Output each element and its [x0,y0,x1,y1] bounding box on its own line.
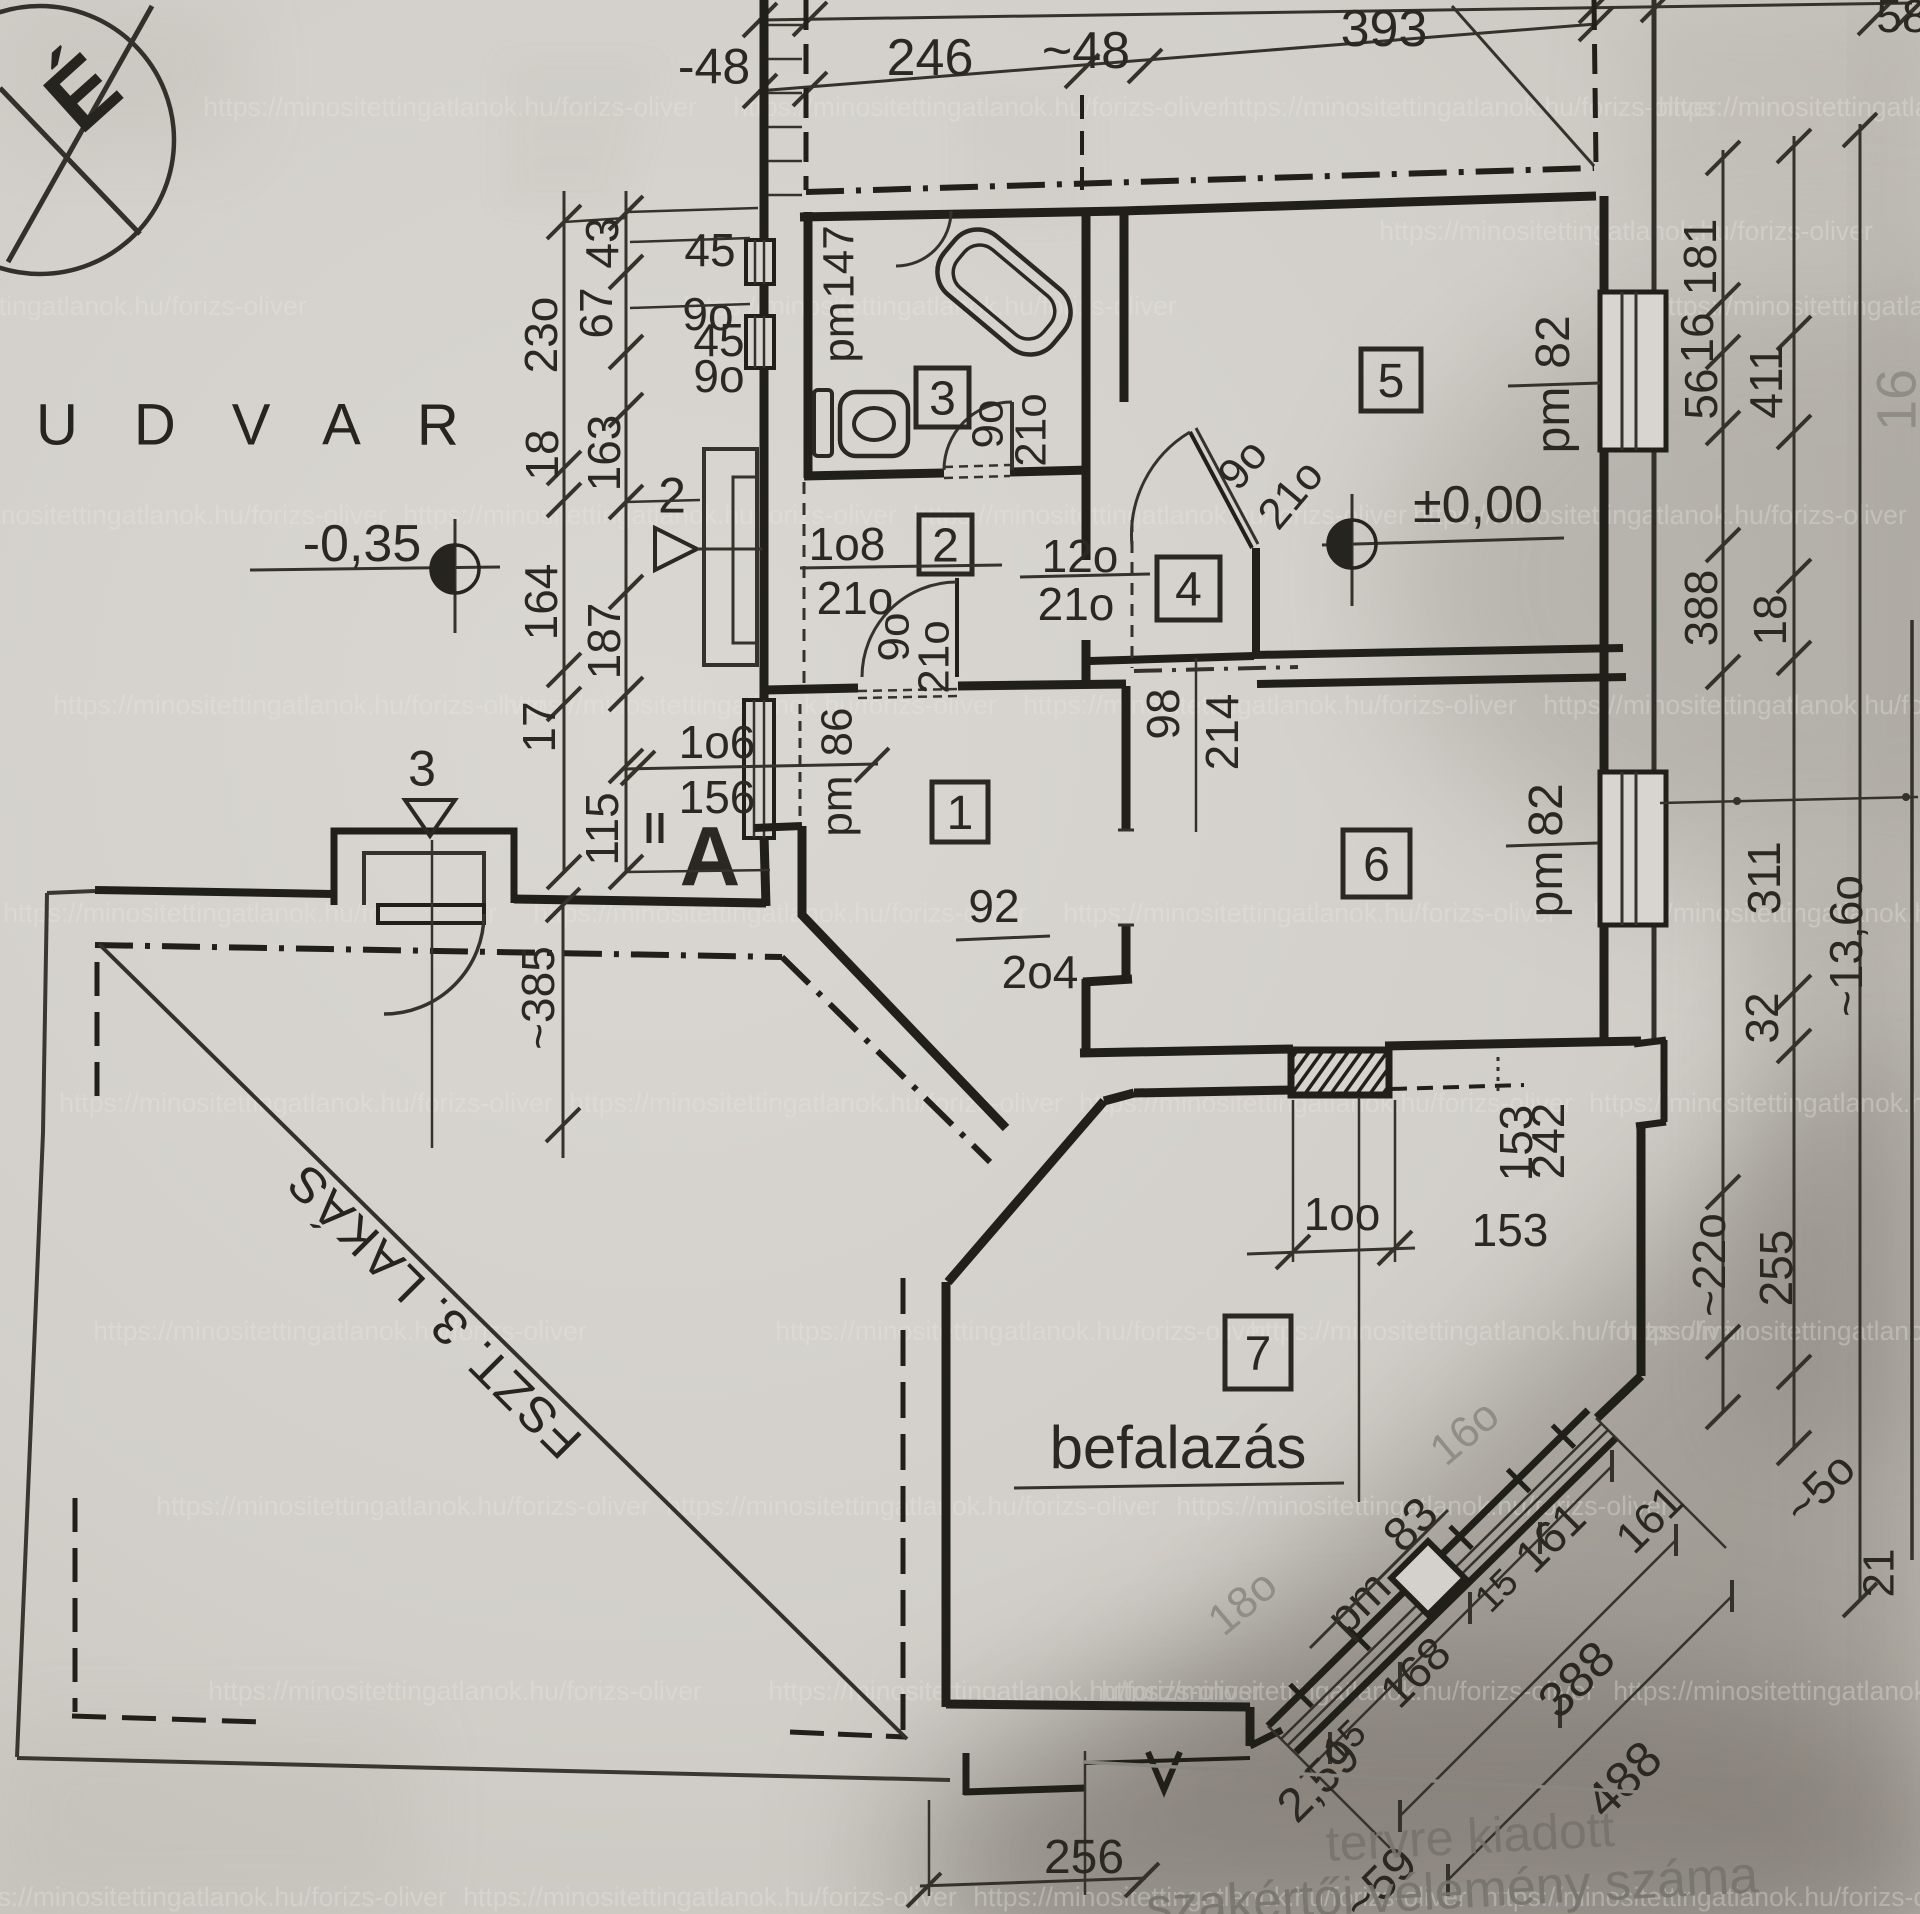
svg-text:https://minositettingatlanok.h: https://minositettingatlanok.hu/forizs-o… [203,92,697,122]
svg-text:187: 187 [578,603,630,680]
svg-text:67: 67 [570,287,622,338]
svg-text:255: 255 [1750,1230,1802,1307]
svg-text:21: 21 [1854,1549,1903,1598]
svg-text:https://minositettingatlanok.h: https://minositettingatlanok.hu/forizs-o… [0,291,307,321]
svg-text:https://minositettingatlanok.h: https://minositettingatlanok.hu/forizs-o… [1223,92,1717,122]
svg-text:~22o: ~22o [1683,1213,1735,1317]
svg-text:43: 43 [576,217,628,268]
svg-text:1: 1 [947,787,974,840]
svg-text:https://minositettingatlanok.h: https://minositettingatlanok.hu/forizs-o… [1063,898,1557,928]
svg-text:pm: pm [814,301,863,362]
svg-text:32: 32 [1736,992,1788,1043]
svg-text:https://minositettingatlanok.h: https://minositettingatlanok.hu/forizs-o… [1589,1088,1920,1118]
svg-text:21o: 21o [1006,393,1055,466]
svg-text:pm: pm [1527,387,1580,454]
svg-text:https://minositettingatlanok.h: https://minositettingatlanok.hu/forizs-o… [53,690,547,720]
svg-text:1o8: 1o8 [809,518,886,570]
svg-text:https://minositettingatlanok.h: https://minositettingatlanok.hu/forizs-o… [1658,92,1920,122]
svg-text:164: 164 [515,564,567,641]
svg-text:2: 2 [658,468,686,524]
svg-text:https://minositettingatlanok.h: https://minositettingatlanok.hu/forizs-o… [1023,690,1517,720]
svg-text:17: 17 [513,701,565,752]
svg-text:16: 16 [1865,369,1920,431]
svg-text:1o6: 1o6 [679,716,756,768]
svg-text:befalazás: befalazás [1050,1414,1307,1481]
svg-text:156: 156 [679,771,756,823]
svg-text:https://minositettingatlanok.h: https://minositettingatlanok.hu/forizs-o… [913,500,1407,530]
svg-text:7: 7 [1245,1327,1272,1380]
svg-text:163: 163 [578,415,630,492]
svg-text:https://minositettingatlanok.h: https://minositettingatlanok.hu/forizs-o… [156,1491,650,1521]
svg-text:~13,6o: ~13,6o [1820,875,1872,1017]
svg-text:UDVAR: UDVAR [36,392,515,457]
svg-text:153: 153 [1472,1204,1549,1256]
svg-text:256: 256 [1044,1831,1124,1884]
svg-text:https://minositettingatlanok.h: https://minositettingatlanok.hu/forizs-o… [666,1491,1160,1521]
svg-text:21o: 21o [909,620,958,693]
svg-text:https://minositettingatlanok.h: https://minositettingatlanok.hu/forizs-o… [0,1882,447,1912]
svg-text:16: 16 [1671,312,1723,363]
svg-text:~385: ~385 [512,946,564,1050]
svg-text:58: 58 [1876,0,1920,42]
svg-text:115: 115 [576,792,628,865]
svg-text:https://minositettingatlanok.h: https://minositettingatlanok.hu/forizs-o… [1613,1676,1920,1706]
svg-text:1oo: 1oo [1304,1188,1381,1240]
svg-text:A: A [680,809,741,903]
svg-text:https://minositettingatlanok.h: https://minositettingatlanok.hu/forizs-o… [59,1088,553,1118]
svg-text:411: 411 [1740,345,1792,418]
svg-text:82: 82 [1527,315,1580,368]
svg-text:~48: ~48 [1042,22,1130,80]
svg-text:4: 4 [1175,563,1202,616]
svg-text:pm: pm [1520,851,1573,918]
svg-text:393: 393 [1341,0,1428,58]
svg-text:pm: pm [812,775,861,836]
svg-text:18: 18 [516,429,568,480]
svg-text:181: 181 [1674,219,1726,296]
svg-text:5: 5 [1378,355,1405,408]
svg-text:246: 246 [887,29,974,87]
svg-text:6: 6 [1363,838,1390,891]
svg-text:311: 311 [1738,841,1790,914]
svg-text:21o: 21o [1038,578,1115,630]
svg-text:9o: 9o [963,400,1012,449]
svg-text:45: 45 [684,224,735,276]
svg-text:23o: 23o [515,297,567,374]
svg-text:86: 86 [812,708,861,757]
svg-text:https://minositettingatlanok.h: https://minositettingatlanok.hu/forizs-o… [1379,216,1873,246]
svg-text:3: 3 [408,741,436,797]
svg-text:https://minositettingatlanok.h: https://minositettingatlanok.hu/forizs-o… [208,1676,702,1706]
svg-text:https://minositettingatlanok.h: https://minositettingatlanok.hu/forizs-o… [93,1316,587,1346]
svg-text:https://minositettingatlanok.h: https://minositettingatlanok.hu/forizs-o… [1623,1316,1920,1346]
svg-text:https://minositettingatlanok.h: https://minositettingatlanok.hu/forizs-o… [775,1316,1269,1346]
svg-text:-0,35: -0,35 [303,515,422,573]
svg-text:56: 56 [1675,368,1727,419]
svg-text:98: 98 [1137,688,1189,739]
svg-text:-48: -48 [678,39,750,95]
svg-text:388: 388 [1675,570,1727,647]
svg-text:2o4: 2o4 [1002,946,1079,998]
svg-text:9o: 9o [693,350,744,402]
svg-text:242: 242 [1522,1103,1574,1180]
svg-text:18: 18 [1744,594,1796,645]
svg-text:147: 147 [814,225,863,298]
svg-text:82: 82 [1520,783,1573,836]
svg-text:https://minositettingatlanok.h: https://minositettingatlanok.hu/forizs-o… [463,1882,957,1912]
svg-text:92: 92 [968,880,1019,932]
svg-text:214: 214 [1196,694,1248,771]
svg-text:3: 3 [929,372,956,425]
svg-text:±0,00: ±0,00 [1413,476,1543,534]
